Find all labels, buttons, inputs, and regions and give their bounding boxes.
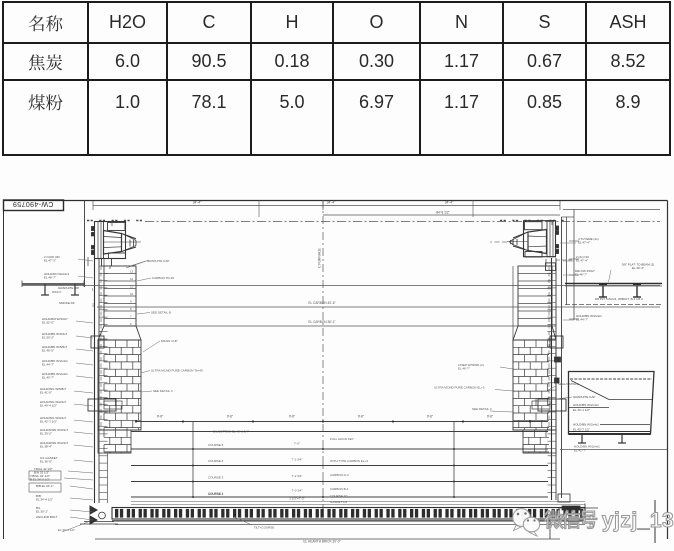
svg-text:: yjzj_13: : yjzj_13 — [588, 509, 674, 532]
